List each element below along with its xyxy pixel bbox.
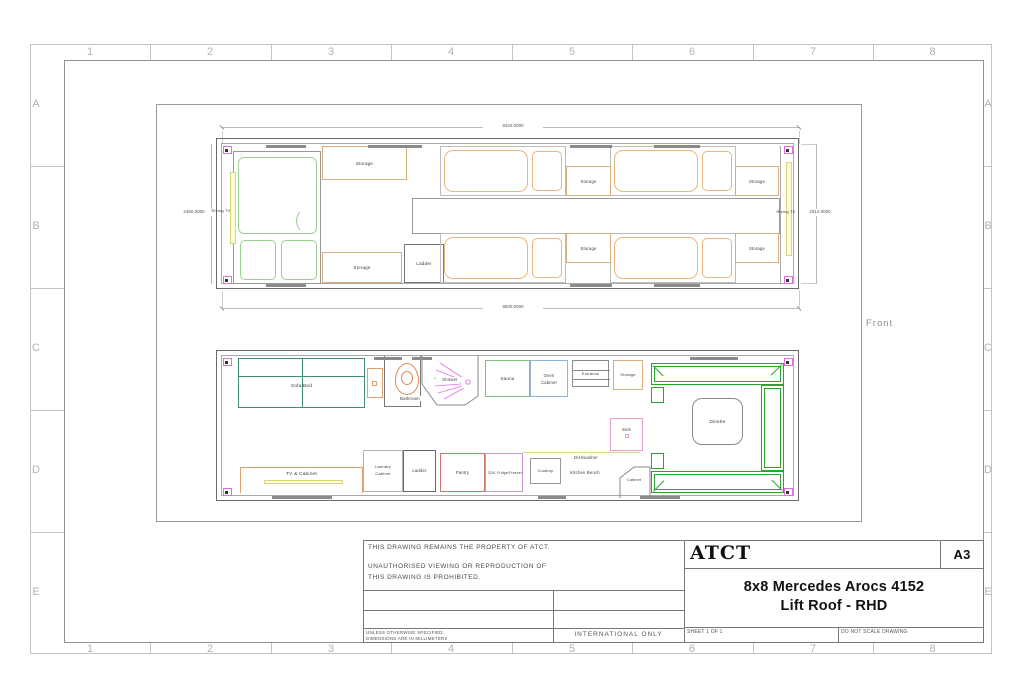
tv-shelf — [264, 480, 343, 484]
ext-line — [799, 131, 800, 144]
paper-size-label: A3 — [940, 547, 984, 563]
entrance-steps: Entrance — [572, 360, 609, 387]
corner-marker — [223, 146, 232, 154]
corner-marker — [223, 358, 232, 366]
grid-tick — [30, 532, 64, 533]
storage-label: Storage — [323, 161, 406, 166]
window-strip — [690, 357, 738, 360]
entrance-label: Entrance — [573, 372, 608, 377]
tv-cabinet-label: TV & Cabinet — [241, 472, 362, 478]
window-strip — [272, 496, 332, 499]
grid-col-label: 1 — [30, 644, 150, 655]
bunk-sleeping-bag — [614, 237, 698, 279]
corner-marker — [784, 276, 793, 284]
sofa-bed-label: Sofa/Bed — [238, 384, 365, 390]
drawing-title-line2: Lift Roof - RHD — [684, 598, 984, 615]
grid-tick — [984, 410, 992, 411]
storage-unit: Storage — [322, 252, 402, 283]
sheet-info: SHEET 1 OF 1 — [687, 629, 767, 635]
grid-col-label: 3 — [271, 644, 391, 655]
corner-marker — [223, 276, 232, 284]
ext-line — [801, 144, 816, 145]
storage-unit: Storage — [566, 233, 611, 263]
master-pillow — [281, 240, 317, 280]
ladder-label: Ladder — [404, 468, 435, 473]
grid-tick — [984, 532, 992, 533]
corner-cabinet-label: Cabinet — [618, 478, 650, 483]
oven-cabinet: Oven Cabinet — [530, 360, 568, 397]
dinette-bench-top — [651, 363, 784, 385]
storage-unit: Storage — [735, 233, 779, 263]
company-logo: ATCT — [690, 542, 810, 565]
storage-label: Storage — [736, 246, 778, 251]
tb-line — [363, 628, 684, 629]
storage-unit: Storage — [613, 360, 643, 390]
grid-col-label: 4 — [391, 644, 511, 655]
property-note-line1: THIS DRAWING REMAINS THE PROPERTY OF ATC… — [368, 544, 668, 552]
sink-bowl — [625, 434, 629, 438]
rising-tv-label: Rising TV — [206, 209, 236, 214]
grid-col-label: 7 — [753, 47, 873, 58]
window-strip — [266, 145, 306, 148]
grid-row-label: D — [28, 465, 44, 476]
front-label: Front — [866, 318, 910, 329]
grid-col-label: 4 — [391, 47, 511, 58]
property-note-line2: UNAUTHORISED VIEWING OR REPRODUCTION OF — [368, 563, 668, 571]
grid-col-label: 8 — [873, 644, 992, 655]
ladder-label: Ladder — [405, 261, 443, 266]
scale-note: DO NOT SCALE DRAWING — [841, 629, 951, 635]
bunk-sleeping-bag — [444, 237, 528, 279]
grid-row-label: A — [981, 99, 995, 110]
grid-col-label: 7 — [753, 644, 873, 655]
dinette-bench-right — [761, 385, 784, 471]
tolerance-note-line1: UNLESS OTHERWISE SPECIFIED: — [366, 630, 546, 635]
bunk-pillow — [702, 151, 732, 191]
corridor — [412, 198, 780, 234]
grid-row-label: B — [28, 221, 44, 232]
window-strip — [654, 284, 700, 287]
storage-label: Storage — [614, 373, 642, 378]
grid-tick — [30, 166, 64, 167]
storage-label: Storage — [323, 265, 401, 270]
dinette-bench-stub — [651, 453, 664, 469]
ladder-upper: Ladder — [404, 244, 444, 283]
window-strip — [654, 145, 700, 148]
fridge-label: 320L Fridge/Freezer — [478, 471, 532, 475]
storage-label: Storage — [736, 179, 778, 184]
corner-marker — [223, 488, 232, 496]
grid-tick — [30, 288, 64, 289]
sink-unit: Sink — [610, 418, 643, 451]
tb-line — [684, 627, 984, 628]
tb-line — [838, 627, 839, 643]
grid-row-label: D — [981, 465, 995, 476]
window-strip — [570, 145, 612, 148]
toilet-bowl — [401, 371, 413, 385]
dinette-bench-bottom — [651, 471, 784, 493]
grid-col-label: 8 — [873, 47, 992, 58]
window-strip — [570, 284, 612, 287]
property-note-line3: THIS DRAWING IS PROHIBITED. — [368, 574, 668, 582]
sofa-cushion-line — [302, 358, 303, 408]
corner-marker — [784, 488, 793, 496]
sauna: Sauna — [485, 360, 530, 397]
bunk-sleeping-bag — [444, 150, 528, 192]
grid-tick — [984, 166, 992, 167]
grid-row-label: E — [28, 587, 44, 598]
grid-col-label: 5 — [512, 644, 632, 655]
oven-label-line1: Oven — [531, 373, 567, 378]
dishwasher-label: Dishwasher — [558, 455, 614, 460]
corner-marker — [784, 358, 793, 366]
ext-line — [801, 283, 816, 284]
kitchen-bench-label: Kitchen Bench — [556, 470, 614, 475]
dim-bottom-text: 9600.0000 — [483, 304, 543, 311]
grid-col-label: 3 — [271, 47, 391, 58]
tolerance-note-line2: DIMENSIONS ARE IN MILLIMETERS — [366, 636, 546, 641]
ext-line — [222, 291, 223, 308]
step-line — [573, 379, 610, 380]
wall-line — [780, 146, 781, 284]
grid-col-label: 2 — [150, 644, 270, 655]
laundry-cabinet: Laundry Cabinet — [363, 450, 403, 492]
grid-row-label: C — [981, 343, 995, 354]
laundry-label-line2: Cabinet — [364, 472, 402, 477]
grid-tick — [984, 288, 992, 289]
master-pillow — [240, 240, 276, 280]
sauna-label: Sauna — [486, 376, 529, 381]
tb-line — [684, 568, 984, 569]
shower-label: Shower — [436, 377, 464, 382]
grid-col-label: 2 — [150, 47, 270, 58]
dinette-table: Dinette — [692, 398, 743, 445]
grid-col-label: 1 — [30, 47, 150, 58]
dim-top-text: 9432.0000 — [483, 123, 543, 130]
window-strip — [640, 496, 680, 499]
window-strip — [538, 496, 566, 499]
international-only-label: INTERNATIONAL ONLY — [553, 631, 684, 639]
storage-label: Storage — [567, 179, 610, 184]
wall-line — [384, 356, 385, 407]
bunk-pillow — [702, 238, 732, 278]
bunk-pillow — [532, 238, 562, 278]
storage-unit: Storage — [735, 166, 779, 196]
dim-right-text: 2312.0000 — [801, 209, 839, 216]
tb-line — [363, 590, 684, 591]
bunk-pillow — [532, 151, 562, 191]
window-strip — [368, 145, 422, 148]
kitchen-bench-edge — [523, 452, 640, 453]
oven-label-line2: Cabinet — [531, 380, 567, 385]
fridge-freezer: 320L Fridge/Freezer — [485, 453, 523, 492]
grid-tick — [30, 410, 64, 411]
dinette-label: Dinette — [693, 419, 742, 425]
window-strip — [266, 284, 306, 287]
grid-row-label: C — [28, 343, 44, 354]
wall-line — [384, 406, 421, 407]
cad-sheet: 1 2 3 4 5 6 7 8 1 2 3 4 5 6 7 8 A B C D … — [0, 0, 1024, 699]
window-strip — [374, 357, 402, 360]
tb-line — [363, 610, 684, 611]
ladder-lower: Ladder — [403, 450, 436, 492]
ext-line — [799, 291, 800, 308]
sink-label: Sink — [611, 427, 642, 432]
bathroom-label: Bathroom — [390, 396, 430, 401]
rising-tv-label: Rising TV — [772, 210, 800, 215]
basin-bowl — [372, 381, 377, 386]
storage-unit: Storage — [322, 146, 407, 180]
dinette-bench-stub — [651, 387, 664, 403]
drawing-title-line1: 8x8 Mercedes Arocs 4152 — [684, 579, 984, 596]
grid-row-label: A — [28, 99, 44, 110]
bunk-sleeping-bag — [614, 150, 698, 192]
grid-row-label: B — [981, 221, 995, 232]
corner-marker — [784, 146, 793, 154]
grid-col-label: 6 — [632, 644, 752, 655]
window-strip — [412, 357, 432, 360]
tv-cabinet: TV & Cabinet — [240, 467, 363, 493]
storage-unit: Storage — [566, 166, 611, 196]
grid-col-label: 5 — [512, 47, 632, 58]
laundry-label-line1: Laundry — [364, 465, 402, 470]
grid-col-label: 6 — [632, 47, 752, 58]
storage-label: Storage — [567, 246, 610, 251]
mattress-fold-line — [296, 208, 320, 234]
